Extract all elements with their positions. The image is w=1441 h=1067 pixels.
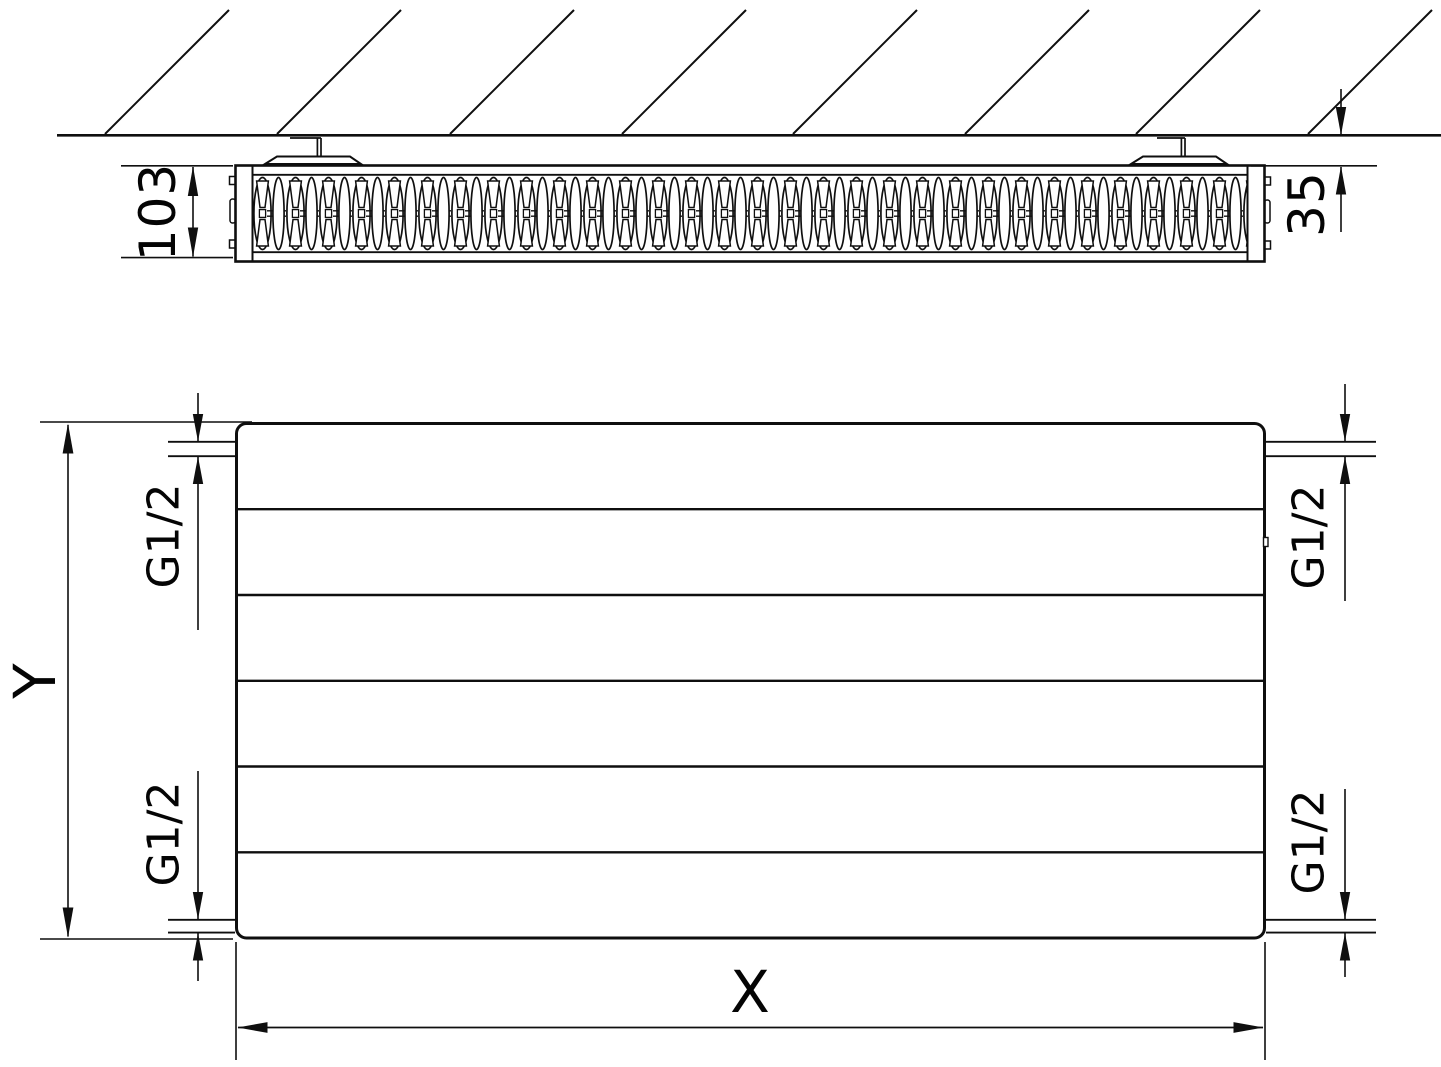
arrow-up-icon	[188, 166, 198, 196]
wall-bracket-right	[1131, 138, 1227, 164]
width-label: X	[730, 958, 770, 1026]
vent-plug-mark	[1264, 538, 1269, 547]
connection-label-top-right: G1/2	[1284, 485, 1335, 590]
connection-label-bottom-left: G1/2	[139, 782, 190, 887]
connection-label-bottom-right: G1/2	[1284, 790, 1335, 895]
arrow-down-icon	[1336, 107, 1346, 135]
dimension-connection-top-left: G1/2	[139, 393, 204, 630]
wall-distance-label: 35	[1278, 171, 1336, 237]
arrow-up-icon	[1336, 166, 1346, 194]
depth-label: 103	[129, 163, 187, 261]
radiator-front-view	[168, 424, 1376, 939]
dimension-connection-bottom-left: G1/2	[139, 771, 204, 981]
arrow-left-icon	[238, 1022, 268, 1033]
dimension-width: X	[236, 942, 1265, 1060]
convector-fins	[253, 176, 1247, 251]
wall-hatching	[105, 10, 1432, 134]
dimension-depth: 103	[121, 163, 233, 261]
wall-bracket-left	[265, 138, 361, 164]
dimension-connection-bottom-right: G1/2	[1284, 789, 1351, 977]
arrow-down-icon	[188, 228, 198, 258]
radiator-top-view	[230, 138, 1271, 262]
dimension-connection-top-right: G1/2	[1284, 384, 1351, 601]
arrow-right-icon	[1234, 1022, 1264, 1033]
arrow-up-icon	[63, 424, 74, 454]
wall-section	[57, 10, 1441, 135]
dimension-height: Y	[1, 422, 252, 939]
height-label: Y	[1, 663, 69, 700]
connection-label-top-left: G1/2	[139, 484, 190, 589]
arrow-down-icon	[63, 908, 74, 938]
radiator-technical-drawing: 103 35	[0, 0, 1441, 1067]
